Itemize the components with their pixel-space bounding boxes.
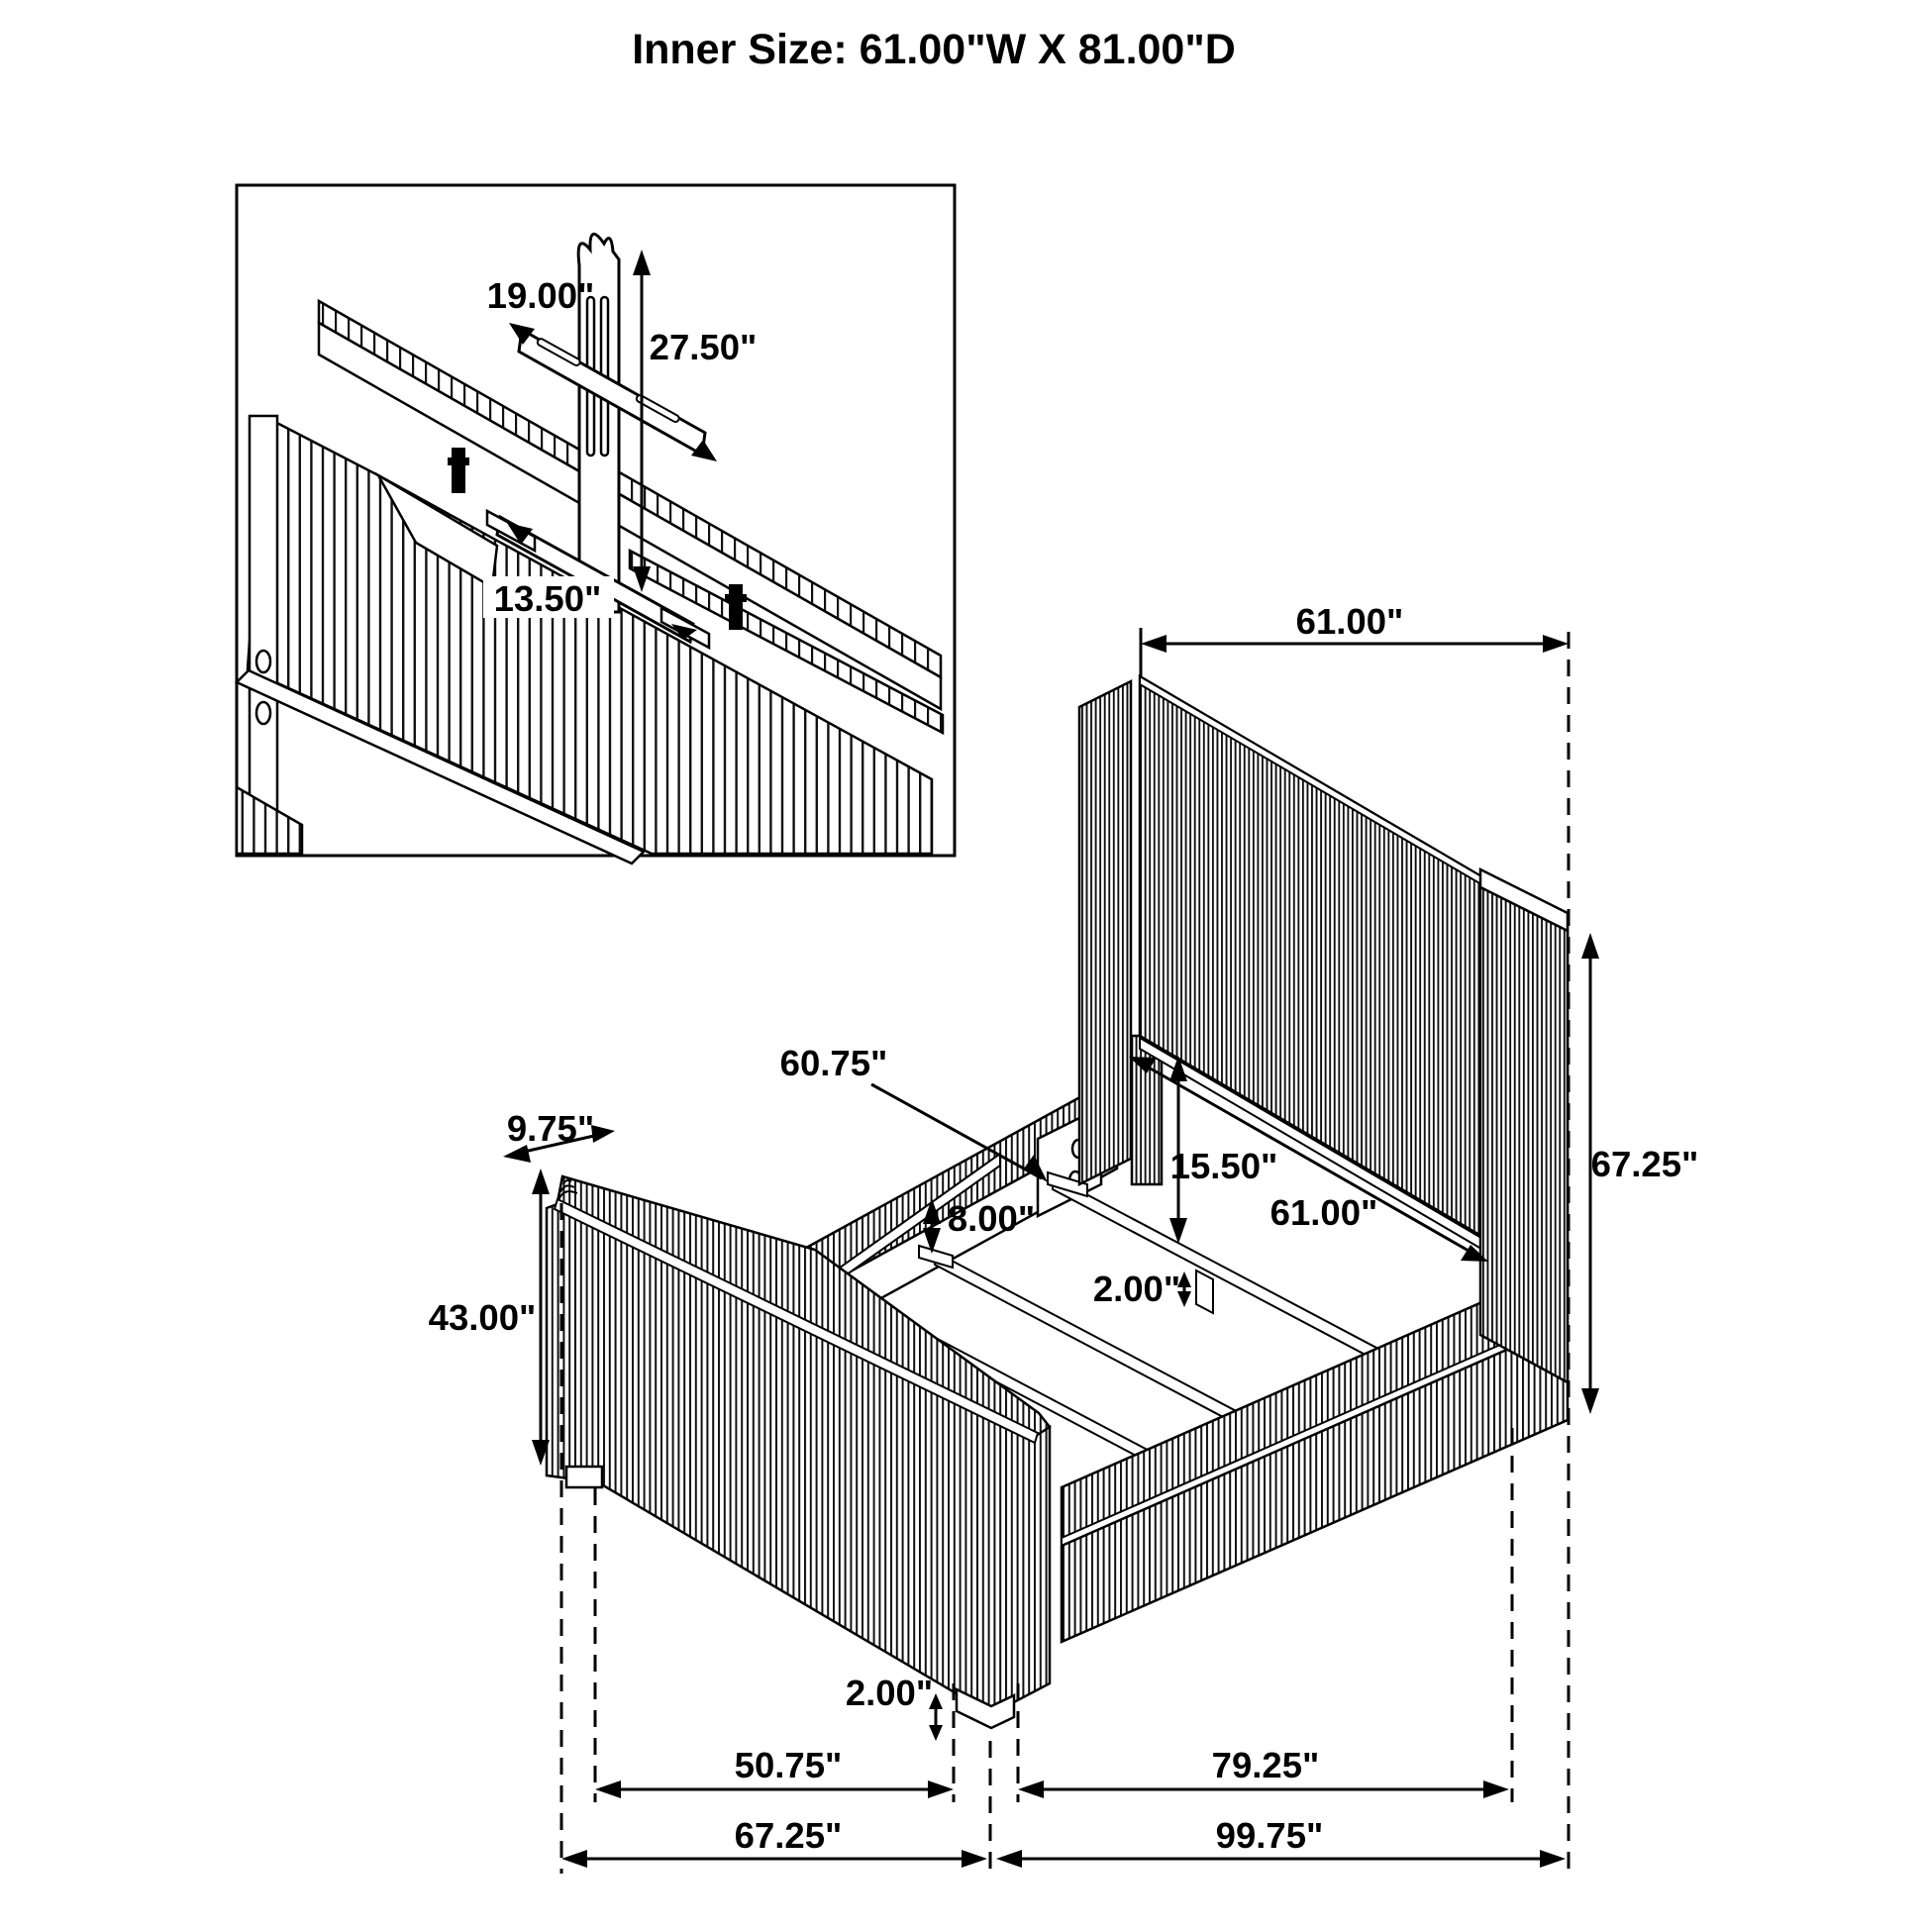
svg-text:2.00": 2.00": [1093, 1269, 1180, 1309]
svg-text:43.00": 43.00": [429, 1297, 537, 1338]
svg-text:61.00": 61.00": [1296, 601, 1404, 642]
svg-text:15.50": 15.50": [1170, 1146, 1278, 1186]
svg-text:8.00": 8.00": [948, 1198, 1035, 1239]
svg-text:13.50": 13.50": [494, 578, 602, 619]
svg-text:27.50": 27.50": [650, 327, 758, 367]
svg-text:19.00": 19.00": [487, 275, 595, 316]
svg-text:67.25": 67.25": [735, 1815, 843, 1856]
svg-text:99.75": 99.75": [1216, 1815, 1324, 1856]
svg-text:60.75": 60.75": [780, 1043, 888, 1083]
svg-text:2.00": 2.00": [846, 1673, 933, 1713]
svg-text:79.25": 79.25": [1212, 1745, 1320, 1785]
svg-text:67.25": 67.25": [1591, 1144, 1699, 1184]
svg-text:50.75": 50.75": [735, 1745, 843, 1785]
svg-text:Inner Size: 61.00"W X 81.00"D: Inner Size: 61.00"W X 81.00"D: [632, 26, 1236, 73]
svg-text:61.00": 61.00": [1270, 1192, 1378, 1233]
svg-text:9.75": 9.75": [507, 1108, 594, 1149]
